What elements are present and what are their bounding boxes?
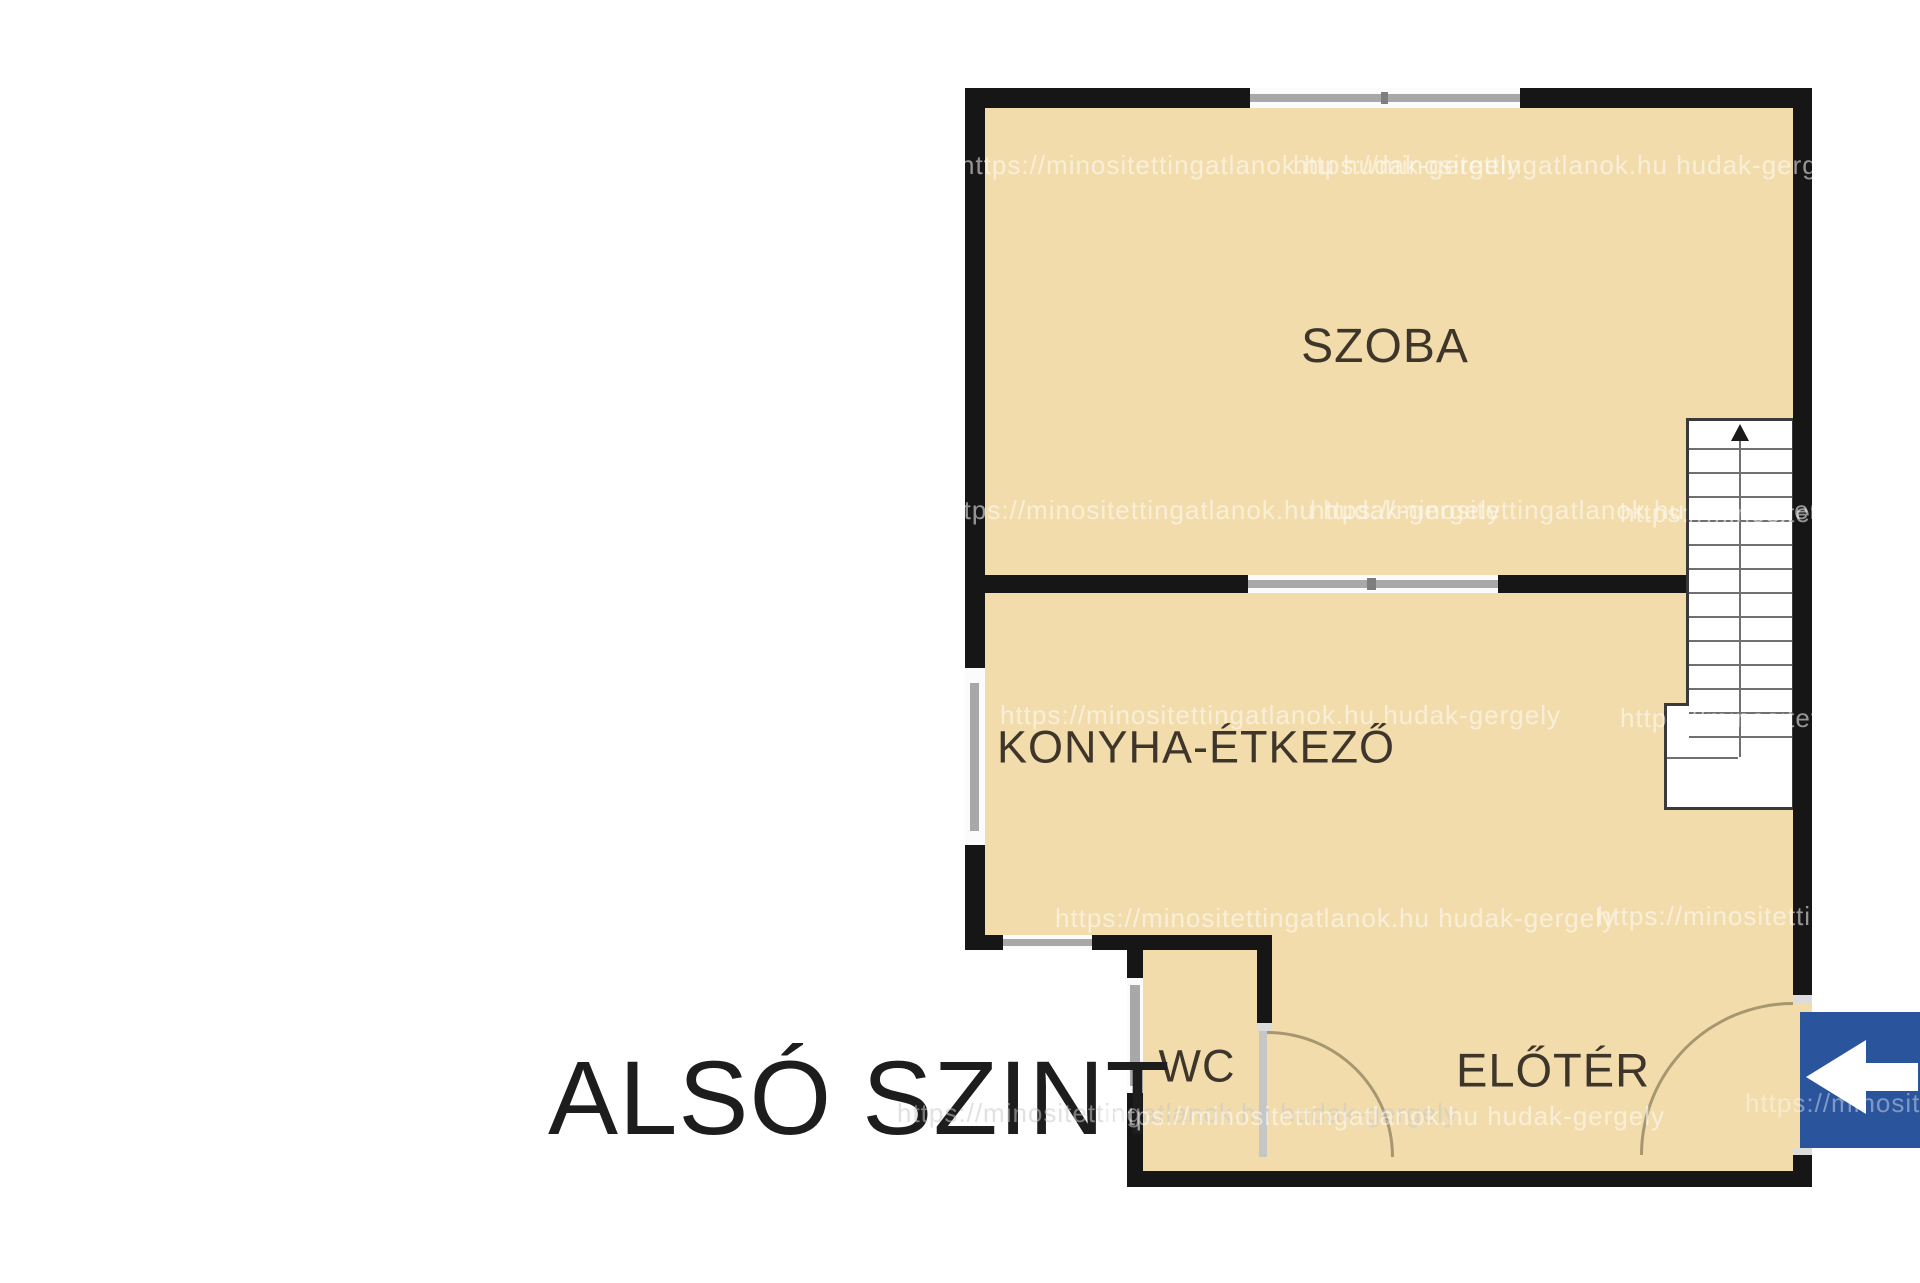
window-kitchen-bottom-glass	[1003, 939, 1092, 946]
room-label-szoba: SZOBA	[1301, 323, 1469, 371]
window-left-glass	[970, 683, 979, 831]
entrance-sill-top	[1793, 995, 1812, 1003]
room-label-eloter: ELŐTÉR	[1456, 1047, 1650, 1094]
wall-wc-left-upper	[1127, 950, 1143, 978]
room-label-konyha-etkezo: KONYHA-ÉTKEZŐ	[997, 725, 1395, 770]
wall-top-left	[965, 88, 1250, 108]
divider-glazing-mullion	[1367, 578, 1376, 590]
window-kitchen-bottom	[1003, 935, 1092, 950]
watermark-text: https://minositettingatlanok.hu hudak-ge…	[1620, 500, 1920, 526]
staircase-landing-line	[1667, 757, 1738, 759]
left-arrow-shaft	[1860, 1063, 1918, 1091]
watermark-text: https://minositettingatlanok.hu hudak-ge…	[1620, 705, 1920, 731]
wall-wc-right	[1257, 935, 1272, 1023]
watermark-text: https://minositettingatlanok.hu hudak-ge…	[1745, 1090, 1920, 1116]
window-top-mullion	[1381, 92, 1388, 104]
wall-wc-top	[1143, 935, 1272, 950]
entrance-sill-bottom	[1793, 1147, 1812, 1155]
staircase-up-arrow	[1731, 424, 1749, 441]
watermark-text: https://minositettingatlanok.hu hudak-ge…	[1104, 1103, 1665, 1129]
window-left	[965, 668, 985, 845]
watermark-text: https://minositettingatlanok.hu hudak-ge…	[1293, 152, 1854, 178]
exit-arrow-sign	[1800, 1012, 1920, 1148]
wc-door-leaf	[1259, 1031, 1267, 1157]
wall-top-right	[1520, 88, 1812, 108]
wall-divider-left	[985, 575, 1248, 593]
divider-glazing	[1248, 575, 1498, 593]
window-top	[1250, 88, 1520, 108]
wall-bottom	[1127, 1171, 1812, 1187]
wall-kitchen-bottom-right	[1092, 935, 1143, 950]
watermark-text: https://minositettingatlanok.hu hudak-ge…	[1055, 905, 1616, 931]
watermark-text: https://minositettingatlanok.hu hudak-ge…	[1597, 903, 1920, 929]
floor-plan-canvas: SZOBA KONYHA-ÉTKEZŐ WC ELŐTÉR ALSÓ SZINT…	[0, 0, 1920, 1283]
wall-divider-right	[1498, 575, 1686, 593]
watermark-text: https://minositettingatlanok.hu hudak-ge…	[1000, 702, 1561, 728]
wall-right-upper	[1793, 88, 1812, 995]
wall-kitchen-bottom-left	[965, 935, 1003, 950]
wc-door-sill	[1257, 1023, 1272, 1031]
